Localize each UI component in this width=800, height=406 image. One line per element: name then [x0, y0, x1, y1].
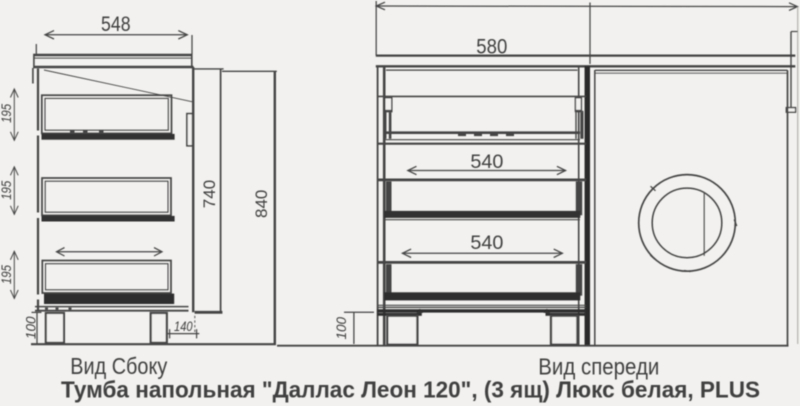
svg-text:540: 540 — [470, 233, 503, 254]
svg-text:195: 195 — [0, 103, 14, 122]
svg-text:580: 580 — [476, 36, 507, 59]
svg-text:740: 740 — [200, 180, 219, 208]
svg-text:100: 100 — [24, 316, 39, 339]
svg-text:Вид Сбоку: Вид Сбоку — [70, 353, 167, 379]
svg-text:540: 540 — [470, 152, 503, 173]
svg-text:840: 840 — [252, 190, 271, 218]
svg-text:140: 140 — [174, 319, 193, 334]
svg-text:100: 100 — [334, 316, 349, 339]
svg-text:195: 195 — [0, 265, 14, 284]
svg-text:Тумба напольная "Даллас Леон 1: Тумба напольная "Даллас Леон 120", (3 ящ… — [61, 377, 760, 403]
svg-text:195: 195 — [0, 180, 14, 199]
svg-text:548: 548 — [101, 13, 131, 36]
